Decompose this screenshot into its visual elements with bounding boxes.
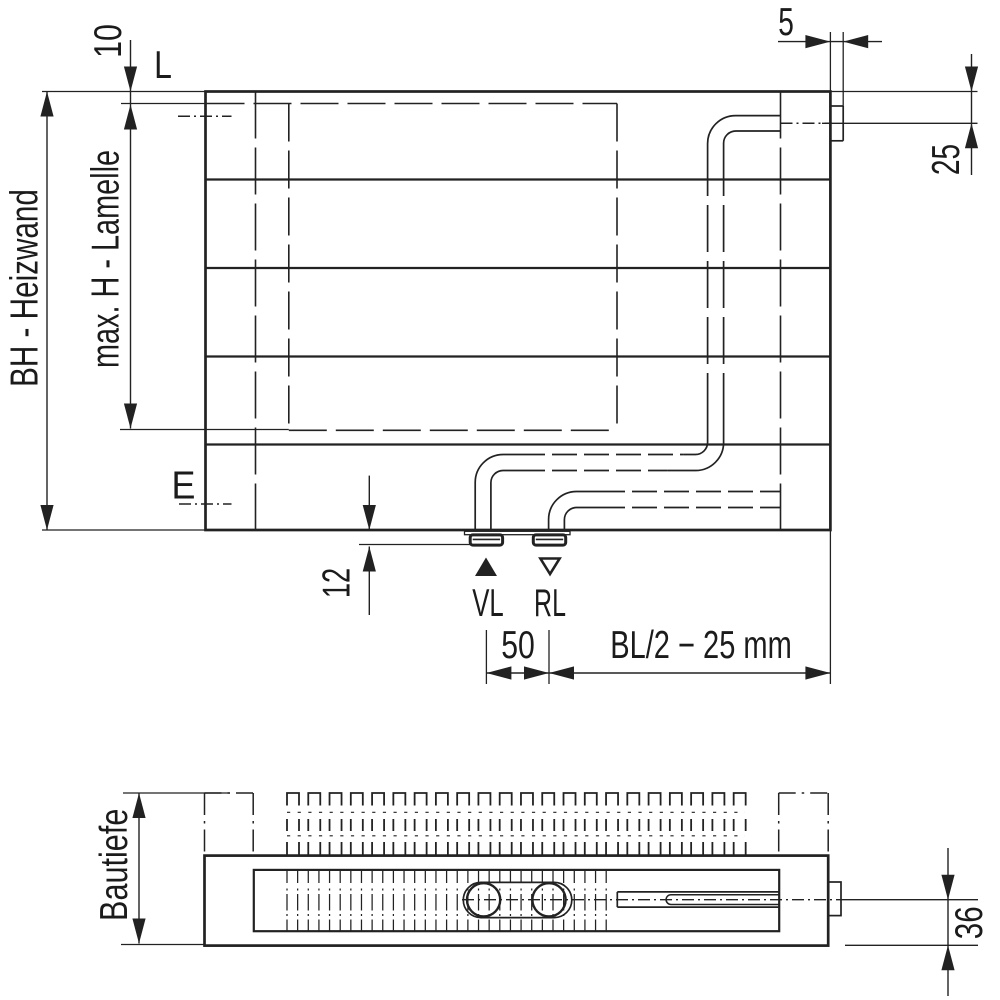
svg-text:VL: VL <box>472 582 503 626</box>
svg-text:Bautiefe: Bautiefe <box>93 809 136 921</box>
svg-text:36: 36 <box>948 906 991 939</box>
svg-text:25: 25 <box>924 144 968 175</box>
svg-text:RL: RL <box>534 580 566 624</box>
svg-text:12: 12 <box>316 568 359 598</box>
svg-text:10: 10 <box>86 24 129 58</box>
svg-text:max. H - Lamelle: max. H - Lamelle <box>84 150 127 368</box>
svg-text:BL/2 − 25 mm: BL/2 − 25 mm <box>610 624 792 667</box>
svg-text:E: E <box>172 463 196 507</box>
svg-text:50: 50 <box>501 623 535 667</box>
svg-text:BH - Heizwand: BH - Heizwand <box>4 189 47 387</box>
svg-text:L: L <box>154 43 172 87</box>
svg-text:5: 5 <box>778 1 794 45</box>
